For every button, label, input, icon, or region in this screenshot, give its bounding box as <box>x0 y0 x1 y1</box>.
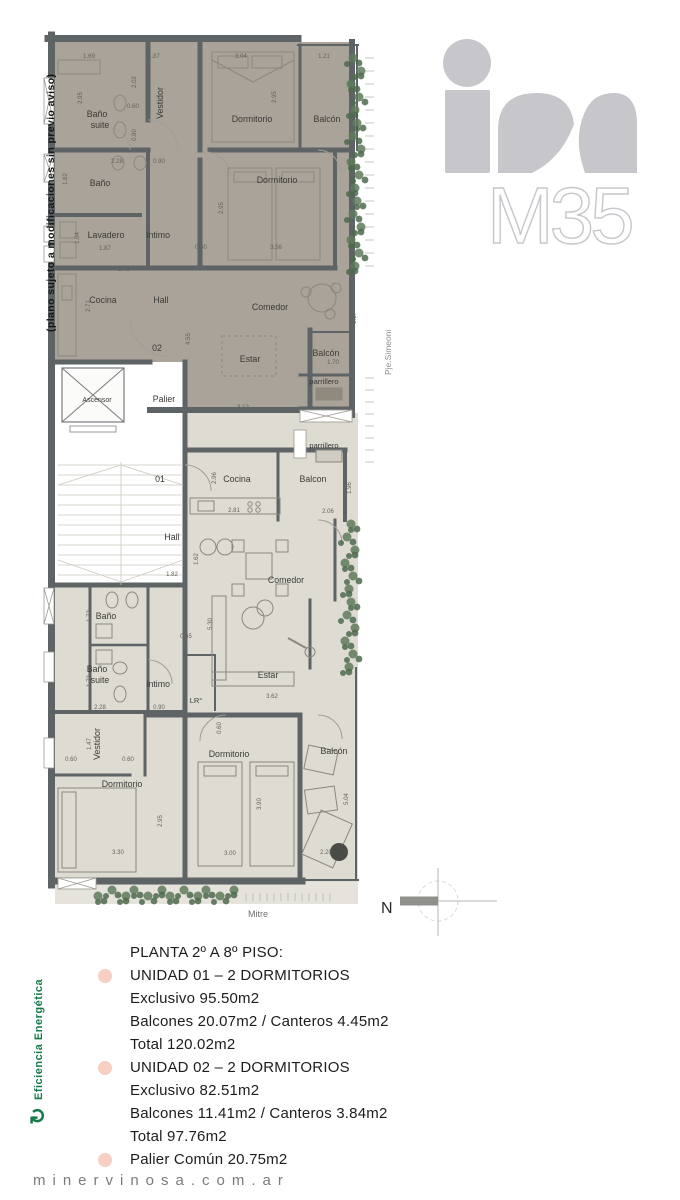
dim-label: 3.62 <box>266 694 278 700</box>
room-label: Vestidor <box>155 87 165 119</box>
room-label: Dormitorio <box>102 779 143 789</box>
room-label: Vestidor <box>92 728 102 760</box>
street-right-label: Pje.Simeoni <box>383 330 393 375</box>
dim-label: 2.28 <box>111 159 123 165</box>
room-label: 02 <box>152 343 162 353</box>
room-label: Comedor <box>252 302 288 312</box>
room-label: Comedor <box>268 575 304 585</box>
dim-label: 0.40 <box>195 245 207 251</box>
room-label: Hall <box>164 532 179 542</box>
dim-label: 2.96 <box>212 472 218 484</box>
dim-label: 1.82 <box>166 572 178 578</box>
brand-logo: M35 <box>443 39 637 260</box>
room-label: 01 <box>155 474 165 484</box>
logo-model-label: M35 <box>487 171 632 260</box>
room-label: Ascensor <box>82 397 112 404</box>
dim-label: 2.02 <box>132 76 138 88</box>
room-label: Palier <box>153 394 176 404</box>
room-label: Balcon <box>300 474 327 484</box>
north-label: N <box>381 900 393 917</box>
room-label: Baño <box>96 611 117 621</box>
room-label: Dormitorio <box>232 114 273 124</box>
room-label: Baño <box>90 178 111 188</box>
legend-text: UNIDAD 02 – 2 DORMITORIOS <box>130 1059 350 1076</box>
legend-row: Total 120.02m2 <box>98 1033 518 1056</box>
legend-row: Palier Común 20.75m2 <box>98 1148 518 1171</box>
dim-label: 0.80 <box>132 129 138 141</box>
energy-label: Eficiencia Energética <box>33 988 45 1100</box>
room-label: Cocina <box>89 295 116 305</box>
legend-text: Palier Común 20.75m2 <box>130 1151 287 1168</box>
legend: PLANTA 2º A 8º PISO: UNIDAD 01 – 2 DORMI… <box>98 941 518 1171</box>
legend-title: PLANTA 2º A 8º PISO: <box>130 944 283 961</box>
dim-label: 0.60 <box>122 757 134 763</box>
legend-row: UNIDAD 02 – 2 DORMITORIOS <box>98 1056 518 1079</box>
legend-text: Exclusivo 95.50m2 <box>130 990 259 1007</box>
legend-text: Exclusivo 82.51m2 <box>130 1082 259 1099</box>
dim-label: 1.69 <box>83 54 95 60</box>
room-label: Intimo <box>146 230 170 240</box>
dim-label: 3.00 <box>224 851 236 857</box>
dim-label: 1.73 <box>87 675 93 687</box>
street-bottom-label: Mitre <box>248 909 268 919</box>
dim-label: 3.30 <box>112 850 124 856</box>
north-arrow: N <box>381 868 497 936</box>
dim-label: 2.71 <box>86 300 92 312</box>
room-label: Hall <box>153 295 168 305</box>
room-label: Baño <box>87 664 108 674</box>
dim-label: 2.43 <box>118 267 130 273</box>
dim-label: 0.60 <box>217 722 223 734</box>
palier-bullet-icon <box>98 1153 130 1167</box>
dim-label: 1.47 <box>87 738 93 750</box>
room-label: Dormitorio <box>209 749 250 759</box>
dim-label: 1.87 <box>99 246 111 252</box>
dim-label: 3.04 <box>235 54 247 60</box>
room-label: Cocina <box>223 474 250 484</box>
energy-badge: Eficiencia Energética ↻ <box>30 988 48 1126</box>
unit02-bullet-icon <box>98 1061 130 1075</box>
room-label: Balcón <box>313 348 340 358</box>
dim-label: 3.17 <box>352 312 358 324</box>
dim-label: 2.95 <box>158 815 164 827</box>
page: BañosuiteVestidorDormitorioBalcónBañoDor… <box>0 0 680 1200</box>
room-label: Lavadero <box>88 230 125 240</box>
dim-label: 1.96 <box>347 482 353 494</box>
dim-label: 1.04 <box>75 232 81 244</box>
dim-label: 0.65 <box>180 634 192 640</box>
energy-refresh-icon: ↻ <box>29 1107 49 1125</box>
dim-label: 2.95 <box>219 202 225 214</box>
room-label: parrillero <box>309 441 338 450</box>
dim-label: 1.62 <box>194 553 200 565</box>
plan-disclaimer: (plano sujeto a modificaciones sin previ… <box>45 74 57 332</box>
dim-label: 2.06 <box>322 509 334 515</box>
dim-label: 0.60 <box>127 104 139 110</box>
north-pointer <box>400 897 438 906</box>
footer-url[interactable]: minervinosa.com.ar <box>33 1172 290 1189</box>
room-label: Intimo <box>146 679 170 689</box>
legend-row: Total 97.76m2 <box>98 1125 518 1148</box>
dim-label: 5.30 <box>208 618 214 630</box>
room-label: Balcón <box>321 746 348 756</box>
dim-label: 2.95 <box>272 91 278 103</box>
dim-label: 2.20 <box>320 850 332 856</box>
room-label: Baño <box>87 109 108 119</box>
legend-text: Total 120.02m2 <box>130 1036 235 1053</box>
legend-text: Balcones 20.07m2 / Canteros 4.45m2 <box>130 1013 389 1030</box>
dim-label: 2.28 <box>94 705 106 711</box>
dim-label: 3.56 <box>270 245 282 251</box>
dim-label: 5.04 <box>344 793 350 805</box>
legend-text: Balcones 11.41m2 / Canteros 3.84m2 <box>130 1105 388 1122</box>
dim-label: 1.82 <box>63 173 69 185</box>
dim-label: 1.70 <box>327 360 339 366</box>
room-label: parrillero <box>309 377 338 386</box>
legend-text: Total 97.76m2 <box>130 1128 227 1145</box>
dim-label: 1.72 <box>87 610 93 622</box>
dim-label: 0.60 <box>65 757 77 763</box>
room-label: Balcón <box>314 114 341 124</box>
dim-label: 2.95 <box>78 92 84 104</box>
legend-row: UNIDAD 01 – 2 DORMITORIOS <box>98 964 518 987</box>
legend-title-row: PLANTA 2º A 8º PISO: <box>98 941 518 964</box>
unit01-bullet-icon <box>98 969 130 983</box>
room-label: Estar <box>240 354 261 364</box>
dim-label: 1.87 <box>148 54 160 60</box>
floorplan-svg: BañosuiteVestidorDormitorioBalcónBañoDor… <box>0 0 680 940</box>
logo-dot-icon <box>443 39 491 87</box>
dim-label: 1.40 <box>156 266 168 272</box>
room-label: Estar <box>258 670 279 680</box>
dim-label: 3.90 <box>257 798 263 810</box>
legend-row: Exclusivo 95.50m2 <box>98 987 518 1010</box>
dim-label: 0.90 <box>153 159 165 165</box>
dim-label: 0.90 <box>153 705 165 711</box>
room-label: Dormitorio <box>257 175 298 185</box>
legend-text: UNIDAD 01 – 2 DORMITORIOS <box>130 967 350 984</box>
dim-label: 3.12 <box>237 405 249 411</box>
dim-label: 2.81 <box>228 508 240 514</box>
legend-row: Balcones 20.07m2 / Canteros 4.45m2 <box>98 1010 518 1033</box>
room-label: LR° <box>190 696 203 705</box>
room-label: suite <box>91 120 110 130</box>
dim-label: 4.55 <box>186 333 192 345</box>
legend-row: Exclusivo 82.51m2 <box>98 1079 518 1102</box>
legend-row: Balcones 11.41m2 / Canteros 3.84m2 <box>98 1102 518 1125</box>
room-label: suite <box>91 675 110 685</box>
dim-label: 1.21 <box>318 54 330 60</box>
